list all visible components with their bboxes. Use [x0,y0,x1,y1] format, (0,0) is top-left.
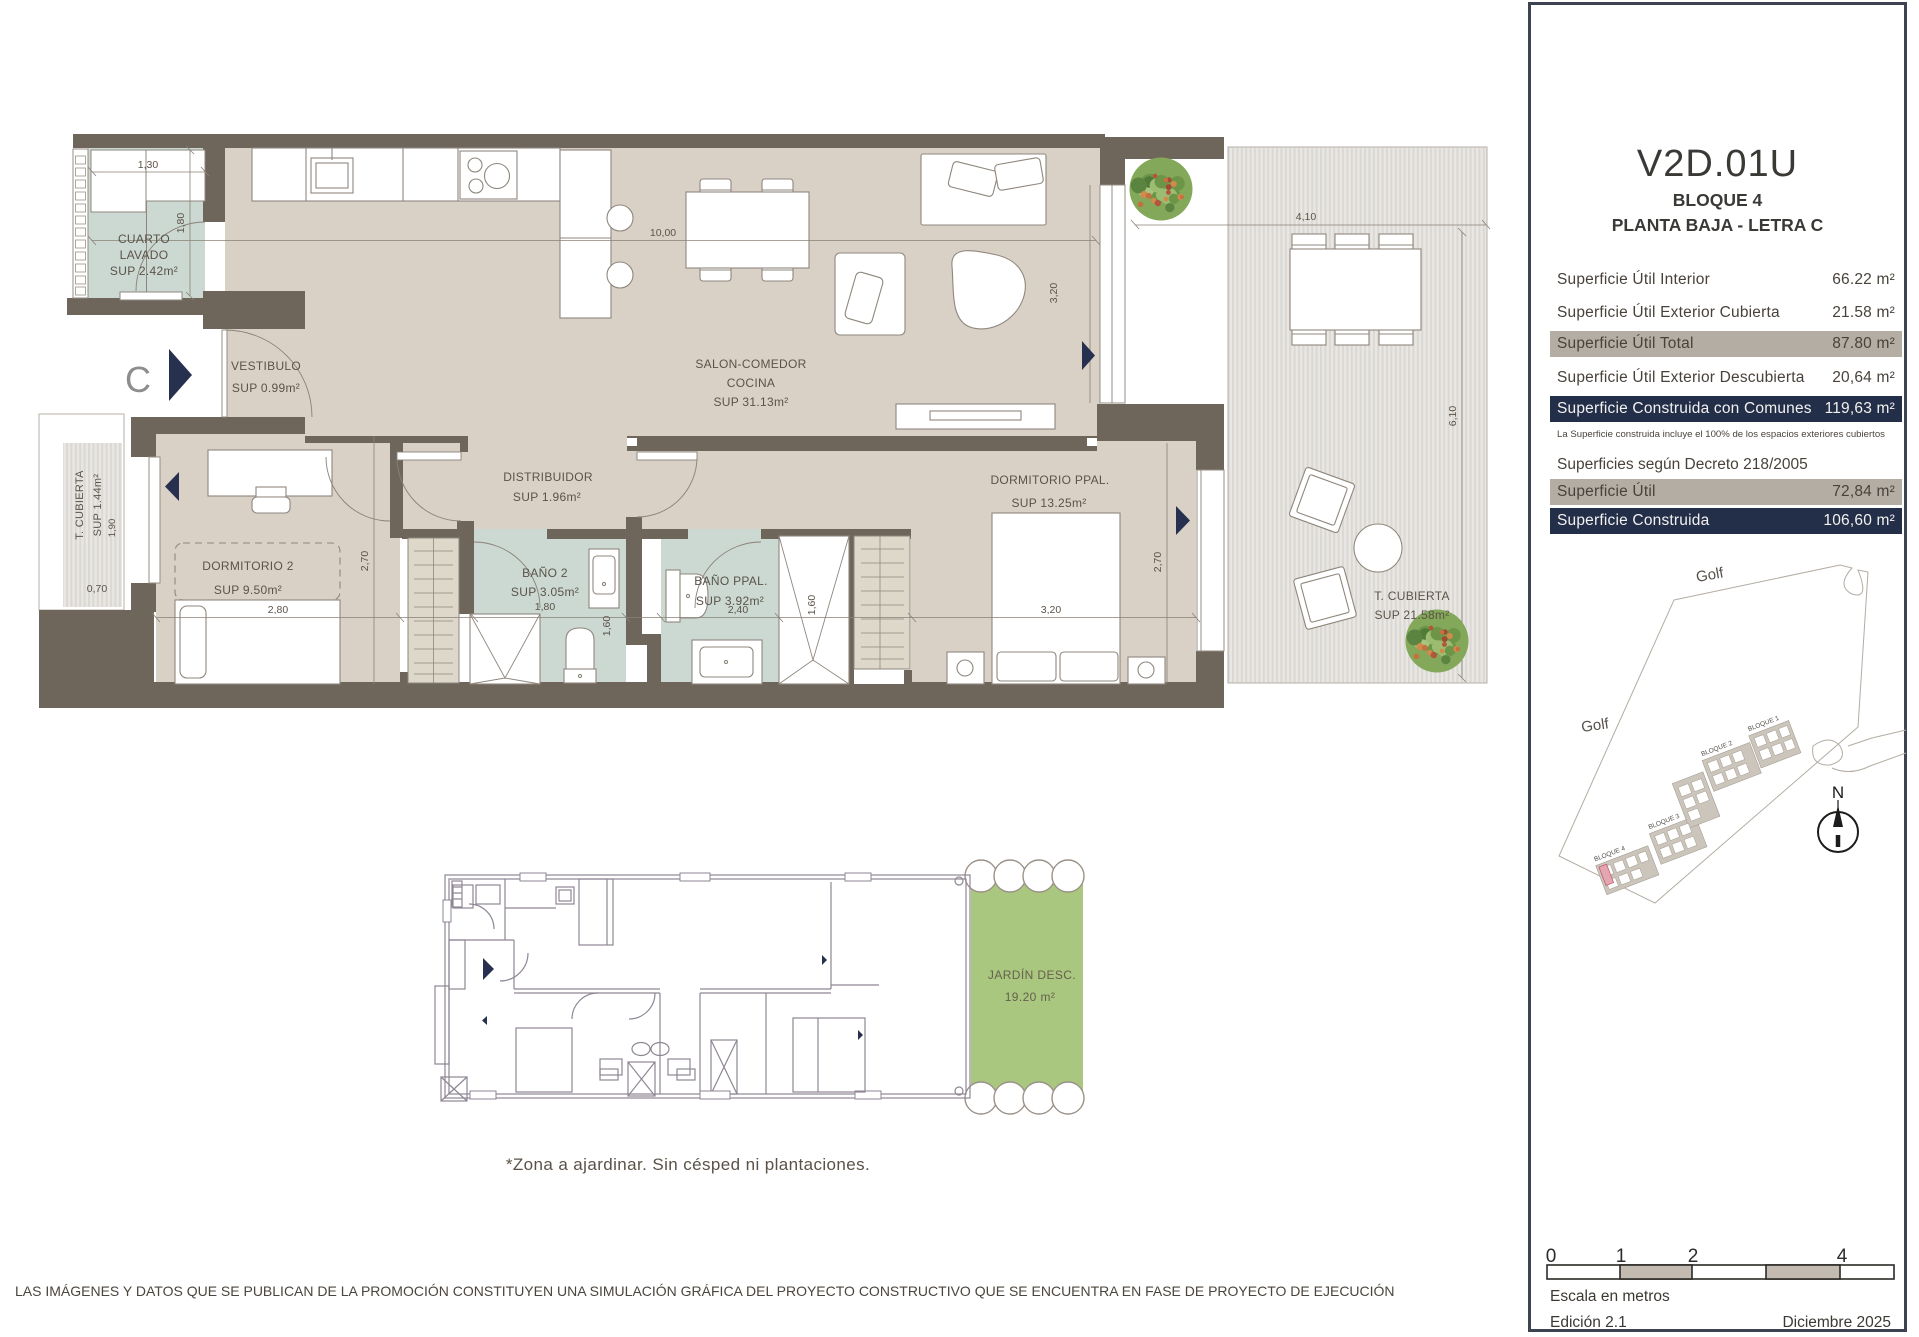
svg-text:2,70: 2,70 [1152,552,1164,573]
svg-text:SALON-COMEDOR: SALON-COMEDOR [695,357,806,371]
svg-text:19.20 m²: 19.20 m² [1005,990,1056,1004]
svg-text:JARDÍN DESC.: JARDÍN DESC. [988,967,1076,982]
svg-text:SUP 2.42m²: SUP 2.42m² [110,264,178,278]
svg-text:DORMITORIO 2: DORMITORIO 2 [202,559,293,573]
svg-text:SUP 31.13m²: SUP 31.13m² [713,395,788,409]
svg-text:COCINA: COCINA [727,376,775,390]
svg-text:1,60: 1,60 [601,616,613,637]
svg-text:SUP 1.96m²: SUP 1.96m² [513,490,581,504]
svg-text:DORMITORIO PPAL.: DORMITORIO PPAL. [990,473,1109,487]
svg-text:3,20: 3,20 [1041,604,1062,616]
svg-text:BAÑO PPAL.: BAÑO PPAL. [694,574,767,588]
svg-text:2,70: 2,70 [359,551,371,572]
svg-text:1: 1 [1616,1246,1627,1267]
svg-text:SUP 13.25m²: SUP 13.25m² [1011,496,1086,510]
svg-text:4: 4 [1837,1246,1848,1267]
svg-text:Golf: Golf [1695,564,1726,586]
svg-text:SUP 1.44m²: SUP 1.44m² [92,474,104,537]
svg-text:1,80: 1,80 [175,213,187,234]
svg-text:4,10: 4,10 [1296,211,1317,223]
svg-text:1,90: 1,90 [107,519,118,538]
svg-text:0: 0 [1546,1246,1557,1267]
svg-text:3,20: 3,20 [1048,283,1060,304]
svg-text:2: 2 [1688,1246,1699,1267]
svg-text:T. CUBIERTA: T. CUBIERTA [74,470,86,540]
svg-text:1,60: 1,60 [806,595,818,616]
svg-text:SUP 21.58m²: SUP 21.58m² [1374,608,1449,622]
svg-text:N: N [1832,783,1844,802]
svg-text:SUP 9.50m²: SUP 9.50m² [214,583,282,597]
svg-text:1,30: 1,30 [138,159,159,171]
svg-text:SUP 3.92m²: SUP 3.92m² [696,594,764,608]
svg-text:CUARTO: CUARTO [118,232,170,246]
svg-text:LAVADO: LAVADO [120,248,169,262]
svg-text:2,80: 2,80 [268,604,289,616]
svg-text:1,80: 1,80 [535,601,556,613]
svg-text:Golf: Golf [1580,715,1610,736]
svg-text:10,00: 10,00 [650,227,676,239]
svg-text:C: C [125,359,151,400]
svg-text:T. CUBIERTA: T. CUBIERTA [1374,589,1450,603]
svg-text:6,10: 6,10 [1447,406,1459,427]
svg-text:SUP 3.05m²: SUP 3.05m² [511,585,579,599]
svg-text:DISTRIBUIDOR: DISTRIBUIDOR [503,470,593,484]
svg-text:0,70: 0,70 [87,583,108,595]
svg-text:SUP 0.99m²: SUP 0.99m² [232,381,300,395]
svg-text:VESTIBULO: VESTIBULO [231,359,301,373]
svg-text:BAÑO 2: BAÑO 2 [522,566,568,580]
svg-text:*Zona a ajardinar. Sin césped: *Zona a ajardinar. Sin césped ni plantac… [506,1155,870,1174]
